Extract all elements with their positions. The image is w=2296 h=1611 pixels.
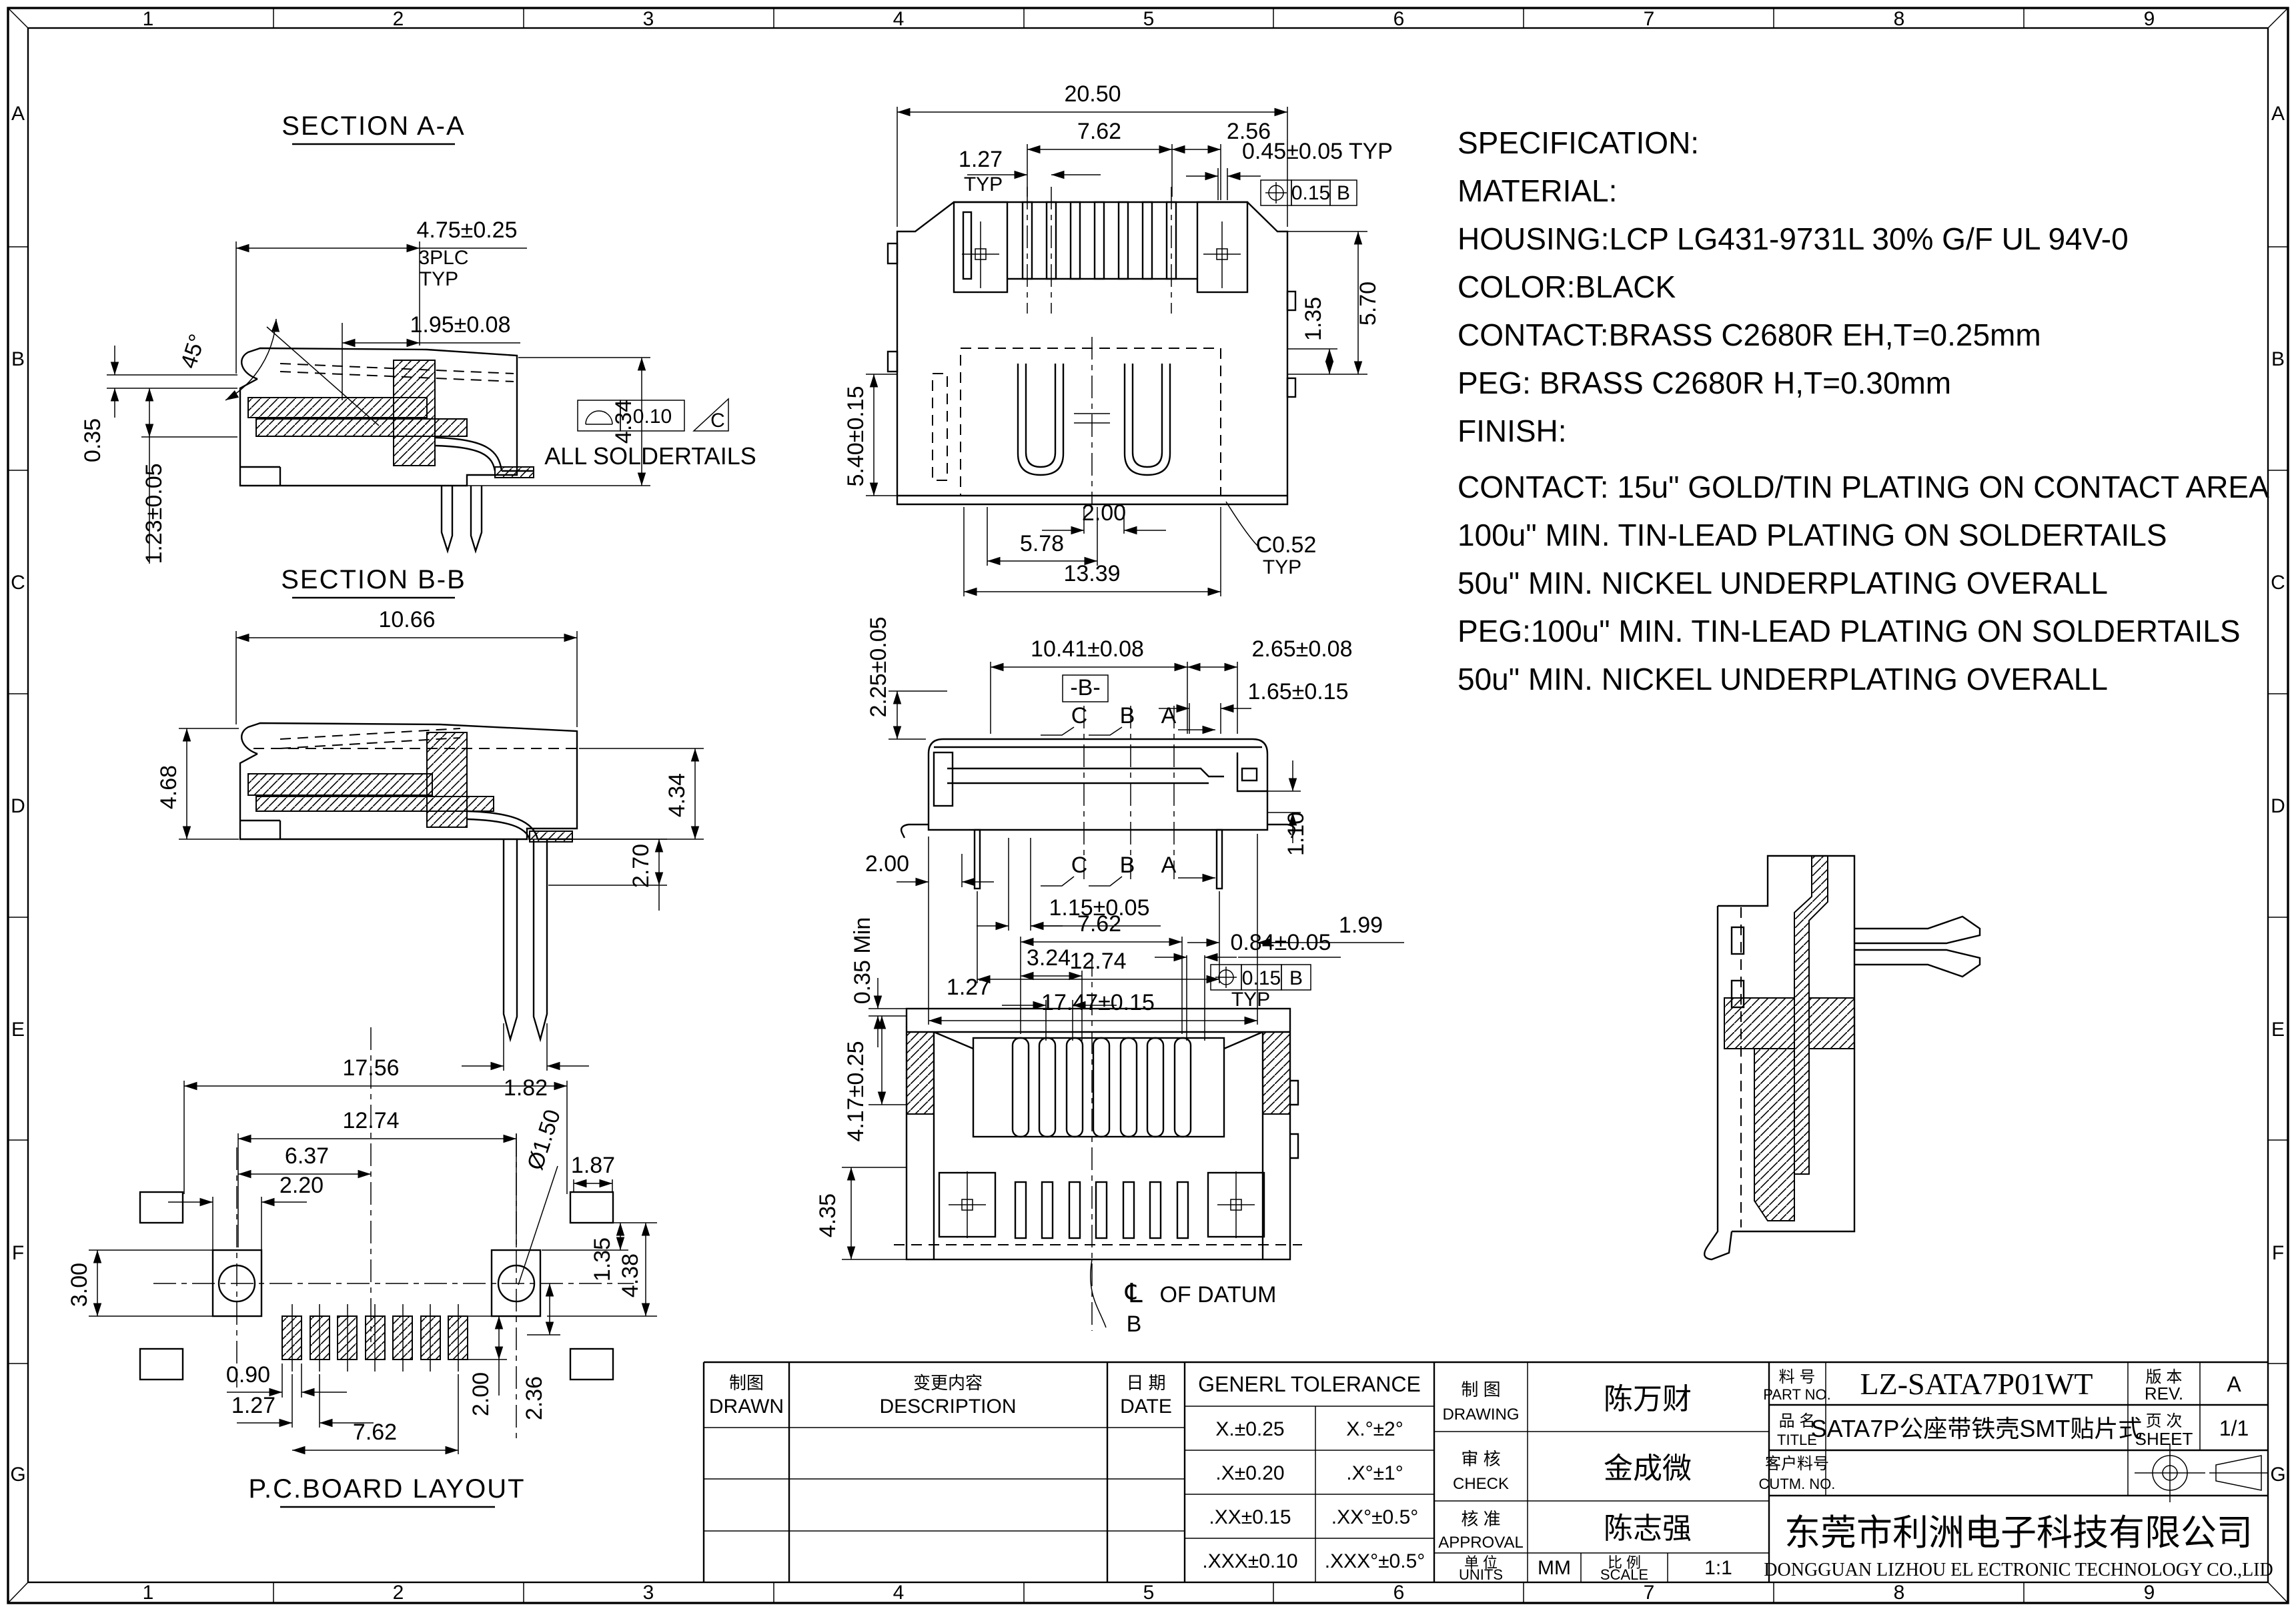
- datum-letter: C: [710, 410, 725, 432]
- dim-text: 2.00: [865, 851, 909, 877]
- tolerance-cell: .XX°±0.5°: [1331, 1506, 1419, 1528]
- part-no-label: PART NO.: [1763, 1386, 1830, 1403]
- cut-label-c: C: [1071, 703, 1088, 728]
- zone-col-label: 2: [393, 1582, 404, 1604]
- dim-note: TYP: [420, 268, 458, 290]
- tolerance-header: GENERL TOLERANCE: [1198, 1372, 1421, 1396]
- dim-text: 4.17±0.25: [843, 1041, 869, 1141]
- dim-text: 1.35: [590, 1237, 615, 1281]
- part-no-cn: 料 号: [1779, 1368, 1816, 1386]
- zone-col-label: 2: [393, 8, 404, 30]
- zone-col-label: 1: [143, 8, 154, 30]
- dim-text: 17.47±0.15: [1041, 990, 1155, 1015]
- front-contacts: [1018, 364, 1170, 475]
- section-aa-title: SECTION A-A: [281, 111, 465, 141]
- dim-text: 1.23±0.05: [141, 463, 167, 564]
- dim-text: 12.74: [1069, 949, 1126, 974]
- fcf-position-front: 0.15 B: [1261, 180, 1357, 205]
- zone-row-label: B: [11, 348, 25, 370]
- dim-text: 4.75±0.25: [416, 217, 517, 243]
- approval-check-cn: 审 核: [1461, 1449, 1500, 1469]
- zone-col-label: 9: [2144, 8, 2155, 30]
- approval-drawing-name: 陈万财: [1604, 1383, 1692, 1416]
- dim-text: 45°: [176, 331, 211, 372]
- zone-row-label: F: [2272, 1242, 2284, 1264]
- spec-line: CONTACT: 15u" GOLD/TIN PLATING ON CONTAC…: [1458, 470, 2269, 504]
- tolerance-cell: .X±0.20: [1215, 1462, 1284, 1484]
- cut-label-a: A: [1161, 853, 1177, 878]
- datum-b-label: -B-: [1070, 675, 1100, 700]
- dim-text: 0.84±0.05: [1230, 930, 1331, 955]
- fcf-datum: B: [1337, 182, 1350, 204]
- revision-date: DATE: [1120, 1396, 1172, 1418]
- spec-line: PEG:100u" MIN. TIN-LEAD PLATING ON SOLDE…: [1458, 614, 2241, 648]
- zone-col-label: 5: [1143, 8, 1155, 30]
- dim-text: 2.20: [279, 1173, 324, 1198]
- view-front: 20.50 7.62 2.56 1.27 TYP 0.45±0.05 TYP 0…: [843, 81, 1393, 596]
- spec-line: FINISH:: [1458, 414, 1567, 448]
- dim-text: 13.39: [1063, 561, 1120, 586]
- tolerance-cell: X.°±2°: [1346, 1418, 1403, 1440]
- zone-col-label: 6: [1393, 1582, 1405, 1604]
- part-number: LZ-SATA7P01WT: [1860, 1367, 2093, 1401]
- company-name-en: DONGGUAN LIZHOU EL ECTRONIC TECHNOLOGY C…: [1764, 1560, 2273, 1580]
- fcf-tolerance: 0.15: [1242, 967, 1281, 989]
- pcb-title: P.C.BOARD LAYOUT: [248, 1474, 525, 1504]
- units-value: MM: [1538, 1557, 1571, 1579]
- approval-approval-name: 陈志强: [1604, 1512, 1692, 1545]
- profile-of-surface-symbol: [586, 411, 612, 424]
- dim-text: 10.66: [378, 607, 435, 632]
- tolerance-cell: .XX±0.15: [1209, 1506, 1291, 1528]
- approval-drawing-cn: 制 图: [1461, 1380, 1500, 1400]
- dim-text: 0.35 Min: [850, 917, 875, 1004]
- view-side-detail: [1704, 856, 1980, 1259]
- zone-col-label: 7: [1644, 8, 1655, 30]
- dim-text: 4.68: [156, 765, 181, 809]
- pcb-smt-pads: [282, 1304, 468, 1372]
- dim-text: 3.24: [1027, 945, 1071, 971]
- zone-row-label: G: [2270, 1464, 2285, 1486]
- cut-label-b: B: [1120, 703, 1135, 728]
- view-pcb-layout: 17.56 12.74 6.37 2.20 Ø1.50 1.87 3.00 1.…: [67, 1027, 657, 1507]
- datum-centerline-note: ℄ OF DATUM B: [1125, 1279, 1276, 1337]
- view-bottom: 7.62 3.24 1.27 0.84±0.05 0.15 B TYP 0.35…: [815, 911, 1341, 1337]
- tolerance-cell: X.±0.25: [1215, 1418, 1284, 1440]
- dim-text: 0.90: [226, 1362, 270, 1388]
- zone-col-label: 8: [1894, 8, 1905, 30]
- approval-approval: APPROVAL: [1438, 1534, 1524, 1552]
- zone-row-label: E: [2271, 1019, 2285, 1041]
- tolerance-cell: .X°±1°: [1346, 1462, 1403, 1484]
- dim-text: 5.78: [1020, 531, 1064, 556]
- zone-row-label: B: [2271, 348, 2285, 370]
- revision-drawn-cn: 制图: [729, 1373, 764, 1393]
- view-section-bb: SECTION B-B 10.66 4.68 4.34 2.70 1.82: [156, 565, 704, 1101]
- front-geometry: [888, 187, 1295, 504]
- spec-line: 50u" MIN. NICKEL UNDERPLATING OVERALL: [1458, 662, 2108, 696]
- dim-text: 1.87: [571, 1153, 615, 1178]
- cut-label-b: B: [1120, 853, 1135, 878]
- centerline-symbol: ℄: [1125, 1279, 1143, 1308]
- dim-text: 2.25±0.05: [866, 616, 891, 717]
- dim-text: 2.65±0.08: [1251, 636, 1352, 662]
- projection-symbol: [2135, 1444, 2268, 1502]
- revision-desc: DESCRIPTION: [879, 1396, 1016, 1418]
- dim-note: TYP: [1231, 989, 1270, 1011]
- datum-letter: B: [1127, 1311, 1142, 1337]
- tolerance-cell: .XXX±0.10: [1202, 1550, 1297, 1572]
- zone-col-label: 5: [1143, 1582, 1155, 1604]
- zone-col-label: 4: [893, 8, 905, 30]
- dim-text: 5.40±0.15: [843, 386, 869, 486]
- title-block-tables: 制图 DRAWN 变更内容 DESCRIPTION 日 期 DATE GENER…: [704, 1362, 2273, 1583]
- dim-text: Ø1.50: [522, 1107, 566, 1173]
- section-cut-labels-bottom: C B A: [1041, 853, 1215, 886]
- spec-line: PEG: BRASS C2680R H,T=0.30mm: [1458, 366, 1951, 400]
- dim-text: 20.50: [1064, 81, 1121, 107]
- zone-col-label: 8: [1894, 1582, 1905, 1604]
- spec-line: 50u" MIN. NICKEL UNDERPLATING OVERALL: [1458, 566, 2108, 600]
- dim-text: 2.70: [628, 844, 654, 888]
- scale-value: 1:1: [1704, 1557, 1732, 1579]
- zone-row-label: C: [11, 572, 25, 594]
- view-section-aa: SECTION A-A 4.75±0.25 3PLC TYP 1.95±0.08…: [80, 111, 756, 564]
- approval-check: CHECK: [1453, 1475, 1509, 1493]
- zone-row-label: A: [11, 103, 25, 125]
- spec-line: MATERIAL:: [1458, 173, 1617, 208]
- position-symbol: [1265, 182, 1287, 203]
- spec-line: COLOR:BLACK: [1458, 270, 1676, 304]
- drawing-sheet: 1 2 3 4 5 6 7 8 9 1 2 3 4 5 6 7 8 9 A B …: [0, 0, 2296, 1611]
- zone-row-label: G: [10, 1464, 25, 1486]
- zone-col-label: 9: [2144, 1582, 2155, 1604]
- zone-col-label: 1: [143, 1582, 154, 1604]
- bottom-slots: [1013, 1038, 1191, 1137]
- scale: SCALE: [1600, 1566, 1648, 1583]
- dim-text: 1.65±0.15: [1247, 679, 1348, 704]
- zone-row-label: A: [2271, 103, 2285, 125]
- section-bb-geometry: [240, 723, 577, 1039]
- sheet-value: 1/1: [2219, 1416, 2249, 1440]
- dim-text: 10.41±0.08: [1031, 636, 1144, 662]
- title-value: SATA7P公座带铁壳SMT贴片式: [1811, 1415, 2143, 1442]
- note-all-soldertails: ALL SOLDERTAILS: [544, 442, 756, 470]
- spec-line: CONTACT:BRASS C2680R EH,T=0.25mm: [1458, 318, 2041, 352]
- dim-text: 1.27: [959, 147, 1003, 172]
- sheet-label: SHEET: [2135, 1429, 2193, 1449]
- mounting-cross-right: [1217, 1171, 1255, 1238]
- fcf-tolerance: 0.15: [1291, 182, 1330, 204]
- mounting-cross-right: [1203, 221, 1241, 288]
- tolerance-cell: .XXX°±0.5°: [1325, 1550, 1425, 1572]
- zone-col-label: 3: [643, 1582, 654, 1604]
- dim-text: 6.37: [285, 1143, 329, 1169]
- specification-block: SPECIFICATION: MATERIAL: HOUSING:LCP LG4…: [1458, 125, 2269, 696]
- section-aa-geometry: [240, 348, 534, 551]
- customer-no-cn: 客户料号: [1765, 1455, 1829, 1473]
- customer-no-label: CUTM. NO.: [1759, 1476, 1836, 1492]
- dim-text: C0.52: [1256, 532, 1317, 558]
- dim-text: 1.35: [1301, 297, 1326, 341]
- dim-text: 7.62: [1077, 911, 1121, 937]
- spec-line: 100u" MIN. TIN-LEAD PLATING ON SOLDERTAI…: [1458, 518, 2167, 552]
- dim-note: TYP: [1263, 556, 1301, 578]
- dim-text: 7.62: [353, 1420, 397, 1445]
- fcf-datum: B: [1289, 967, 1303, 989]
- dim-text: 1.27: [947, 975, 991, 1000]
- dim-text: 2.00: [1082, 500, 1126, 526]
- dim-text: 17.56: [342, 1055, 399, 1081]
- revision-drawn: DRAWN: [709, 1396, 784, 1418]
- note-of-datum: OF DATUM: [1159, 1282, 1276, 1307]
- title-cn: 品 名: [1779, 1412, 1816, 1430]
- side-geometry: [901, 706, 1295, 889]
- cut-label-c: C: [1071, 853, 1088, 878]
- position-symbol: [1215, 967, 1237, 988]
- sheet-cn: 页 次: [2146, 1412, 2183, 1430]
- dim-text: 0.35: [80, 418, 105, 462]
- zone-col-label: 7: [1644, 1582, 1655, 1604]
- fcf-position-bottom: 0.15 B: [1211, 965, 1311, 990]
- dim-text: 2.36: [522, 1376, 547, 1420]
- revision-desc-cn: 变更内容: [913, 1373, 983, 1393]
- zone-row-label: E: [11, 1019, 25, 1041]
- dim-note: TYP: [964, 173, 1003, 195]
- dim-text: 3.00: [67, 1263, 92, 1307]
- dim-text: 0.45±0.05 TYP: [1242, 139, 1393, 164]
- zone-row-label: F: [12, 1242, 24, 1264]
- dim-note: 3PLC: [418, 247, 468, 269]
- units: UNITS: [1459, 1566, 1503, 1583]
- dim-text: 4.35: [815, 1193, 840, 1237]
- rev-value: A: [2227, 1372, 2241, 1396]
- approval-approval-cn: 核 准: [1461, 1509, 1500, 1529]
- zone-row-label: D: [11, 795, 25, 817]
- spec-line: SPECIFICATION:: [1458, 125, 1699, 160]
- approval-drawing: DRAWING: [1442, 1406, 1519, 1424]
- pcb-geometry: [140, 1027, 634, 1441]
- dim-text: 1.27: [231, 1393, 275, 1418]
- zone-row-label: C: [2271, 572, 2285, 594]
- cut-label-a: A: [1161, 703, 1177, 728]
- zone-col-label: 4: [893, 1582, 905, 1604]
- dim-text: 1.10: [1283, 812, 1309, 856]
- dim-text: 4.34: [664, 773, 690, 817]
- front-pins: [1007, 187, 1197, 314]
- dim-text: 1.95±0.08: [410, 312, 510, 338]
- rev-label: REV.: [2145, 1384, 2183, 1404]
- section-bb-title: SECTION B-B: [281, 565, 466, 594]
- dim-text: 4.38: [618, 1253, 643, 1297]
- view-side: 2.25±0.05 10.41±0.08 -B- 2.65±0.08 1.65±…: [865, 616, 1404, 1025]
- fcf-profile: 0.10 C: [578, 399, 728, 432]
- dim-text: 2.00: [468, 1372, 494, 1416]
- company-name-cn: 东莞市利洲电子科技有限公司: [1784, 1513, 2253, 1553]
- zone-col-label: 6: [1393, 8, 1405, 30]
- dim-text: 1.82: [504, 1075, 548, 1101]
- spec-line: HOUSING:LCP LG431-9731L 30% G/F UL 94V-0: [1458, 221, 2129, 256]
- dim-text: 1.99: [1339, 913, 1383, 938]
- bottom-soldertails: [1015, 1182, 1188, 1238]
- approval-check-name: 金成微: [1604, 1452, 1692, 1485]
- dim-text: 7.62: [1077, 119, 1121, 144]
- zone-row-label: D: [2271, 795, 2285, 817]
- fcf-tolerance: 0.10: [633, 406, 672, 428]
- revision-date-cn: 日 期: [1126, 1373, 1165, 1393]
- detail-geometry: [1704, 856, 1980, 1259]
- zone-col-label: 3: [643, 8, 654, 30]
- dim-text: 5.70: [1355, 282, 1381, 326]
- mounting-cross-left: [949, 1171, 986, 1238]
- dim-text: 12.74: [342, 1108, 399, 1133]
